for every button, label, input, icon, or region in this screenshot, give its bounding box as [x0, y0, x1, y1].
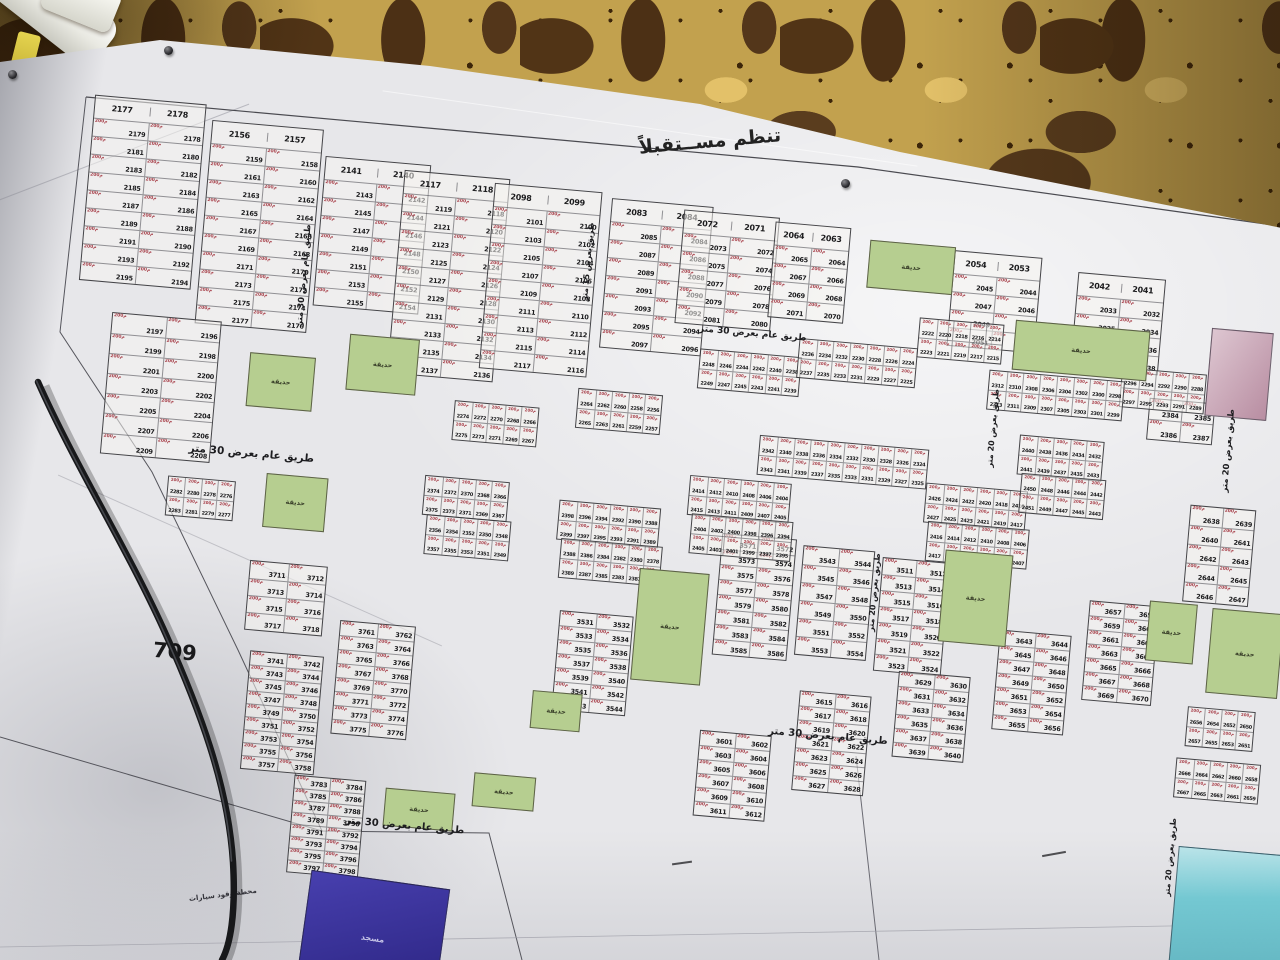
plot-cell: 200م3714: [285, 582, 325, 601]
plot-cell: 200م2646: [1183, 582, 1216, 603]
plot-area-label: 200م: [340, 636, 353, 642]
plot-area-label: 200م: [490, 424, 502, 430]
plot-number: 2410: [978, 538, 994, 545]
plot-number: 3770: [390, 687, 408, 696]
plot-number: 2332: [844, 455, 860, 462]
plot-cell: 200م2417: [926, 542, 944, 561]
plot-cell: 2042: [1078, 280, 1121, 293]
plot-area-label: 200م: [1075, 398, 1087, 404]
plot-area-label: 200م: [244, 743, 257, 749]
plot-area-label: 200م: [207, 198, 220, 204]
plot-area-label: 200م: [491, 243, 504, 249]
plot-cell: 200م2326: [893, 448, 911, 468]
plot-number: 2400: [725, 529, 741, 536]
plot-area-label: 200م: [998, 528, 1010, 534]
plot-area-label: 200م: [581, 389, 593, 395]
plot-number: 3761: [358, 628, 376, 637]
plot-cell: 200م2392: [609, 505, 627, 525]
plot-area-label: 200م: [252, 561, 265, 567]
plot-area-label: 200م: [1246, 765, 1258, 771]
plot-cell: 200م3513: [881, 575, 915, 593]
plot-cell: 200م2334: [826, 442, 844, 462]
plot-cell: 200م3611: [694, 802, 730, 818]
plot-cell: 200م2647: [1215, 585, 1249, 606]
plot-cell: 200م2215: [984, 344, 1002, 363]
plot-area-label: 200م: [1190, 707, 1202, 713]
plot-number: 2199: [144, 347, 162, 356]
plot-cell: 200م3627: [792, 776, 828, 792]
plot-number: 2644: [1197, 574, 1215, 583]
plot-area-label: 200م: [250, 579, 263, 585]
plot-number: 2183: [125, 166, 143, 175]
plot-cell: 200م2640: [1188, 526, 1221, 547]
plot-number: 3749: [262, 709, 280, 718]
plot-number: 2200: [197, 372, 215, 381]
plot-area-label: 200م: [818, 361, 830, 367]
plot-area-label: 200م: [204, 234, 217, 240]
plot-area-label: 200م: [772, 281, 785, 287]
plot-area-label: 200م: [537, 337, 550, 343]
plot-number: 3534: [611, 635, 629, 644]
plot-cell: 200م2195: [80, 262, 136, 284]
plot-number: 2228: [867, 357, 883, 364]
plot-cell: 200م2256: [644, 395, 662, 415]
plot-cell: 200م2434: [1069, 440, 1087, 460]
plot-area-label: 200م: [897, 448, 909, 454]
plot-number: 2658: [1243, 776, 1259, 783]
plot-area-label: 200م: [333, 720, 346, 726]
plot-cell: 200م2234: [815, 341, 833, 361]
plot-area-label: 200م: [580, 561, 592, 567]
plot-area-label: 200م: [699, 760, 712, 766]
plot-cell: 200م2340: [776, 437, 794, 457]
plot-number: 2275: [453, 432, 470, 439]
plot-number: 3577: [735, 586, 753, 595]
plot-number: 2366: [492, 494, 508, 501]
plot-number: 2196: [200, 332, 218, 341]
plot-area-label: 200م: [595, 524, 607, 530]
plot-number: 3545: [817, 574, 835, 583]
plot-number: 2659: [1241, 795, 1257, 802]
plot-area-label: 200م: [267, 149, 280, 155]
plot-cell: 200م2398: [559, 501, 577, 521]
plot-cell: 200م2275: [452, 421, 470, 440]
plot-number: 2640: [1201, 536, 1219, 545]
plot-area-label: 200م: [721, 565, 734, 571]
plot-number: 2394: [593, 516, 609, 523]
plot-area-label: 200م: [564, 539, 576, 545]
plot-area-label: 200م: [282, 720, 295, 726]
garden-area: حديقة: [1012, 320, 1151, 382]
plot-area-label: 200م: [693, 476, 705, 482]
plot-area-label: 200م: [140, 231, 153, 237]
garden-area: حديقة: [866, 240, 956, 295]
plot-number: 2422: [960, 499, 976, 506]
plot-area-label: 200م: [998, 674, 1011, 680]
plot-number: 2290: [1172, 385, 1188, 392]
plot-number: 3646: [1049, 654, 1067, 663]
plot-cell: 200م2405: [689, 534, 707, 553]
garden-area: حديقة: [1205, 608, 1280, 699]
plot-cell: 200م2651: [1235, 732, 1253, 751]
plot-number: 2157: [267, 132, 322, 146]
plot-number: 3791: [306, 828, 324, 837]
plot-cell: 200م2329: [875, 466, 893, 485]
plot-number: 2378: [645, 558, 661, 565]
plot-number: 2205: [139, 407, 157, 416]
plot-area-label: 200م: [691, 496, 703, 502]
plot-number: 2194: [171, 278, 189, 287]
plot-area-label: 200م: [455, 217, 468, 223]
plot-area-label: 200م: [261, 221, 274, 227]
plot-cell: 200م2270: [487, 404, 505, 424]
plot-cell: 200م2446: [1054, 477, 1072, 497]
plot-area-label: 200م: [428, 476, 440, 482]
map-title: تنظم مســتقبلاً: [602, 121, 818, 162]
plot-number: 2111: [518, 307, 536, 316]
plot-area-label: 200م: [911, 642, 924, 648]
plot-cell: 200م2406: [756, 482, 774, 502]
plot-cell: 200م2333: [841, 463, 859, 482]
plot-number: 2292: [1156, 383, 1172, 390]
plot-cell: 200م2401: [723, 537, 741, 556]
plot-number: 3793: [305, 840, 323, 849]
plot-number: 2350: [477, 532, 493, 539]
plot-area-label: 200م: [648, 395, 660, 401]
plot-area-label: 200م: [291, 837, 304, 843]
plot-cell: 200م2328: [876, 446, 894, 466]
plot-area-label: 200م: [1189, 727, 1201, 733]
plot-area-label: 200م: [163, 379, 176, 385]
plot-cell: 2063: [812, 232, 850, 244]
plot-number: 3544: [854, 560, 872, 569]
plot-area-label: 200م: [900, 672, 913, 678]
plot-cell: 200م3629: [899, 672, 935, 689]
plot-area-label: 200م: [370, 723, 383, 729]
plot-area-label: 200م: [456, 199, 469, 205]
plot-number: 2193: [117, 255, 135, 264]
plot-cell: 200م2280: [184, 478, 202, 498]
plot-area-label: 200م: [491, 404, 503, 410]
plot-number: 3649: [1012, 679, 1030, 688]
plot-number: 3618: [849, 715, 867, 724]
plot-number: 2041: [1121, 283, 1164, 296]
plot-number: 2081: [703, 316, 721, 325]
plot-area-label: 200م: [1230, 763, 1242, 769]
plot-number: 2047: [974, 302, 992, 311]
plot-cell: 200م2279: [199, 499, 217, 518]
plot-area-label: 200م: [1124, 619, 1137, 625]
plot-cell: 200م2355: [441, 537, 459, 556]
plot-area-label: 200م: [545, 247, 558, 253]
plot-number: 3517: [892, 614, 910, 623]
plot-cell: 200م2449: [1036, 495, 1054, 514]
plot-number: 3540: [608, 677, 626, 686]
plot-number: 2443: [1087, 511, 1103, 518]
plot-number: 3711: [268, 571, 286, 580]
plot-cell: 200م2655: [1202, 729, 1220, 748]
plot-number: 2159: [245, 155, 263, 164]
plot-area-label: 200م: [829, 779, 842, 785]
plot-area-label: 200م: [1085, 672, 1098, 678]
plot-cell: 200م2069: [770, 281, 808, 301]
plot-area-label: 200م: [947, 485, 959, 491]
plot-area-label: 200م: [607, 276, 620, 282]
plot-number: 2063: [813, 232, 850, 244]
plot-cell: 200م2068: [806, 284, 845, 304]
plot-area-label: 200م: [953, 292, 966, 298]
plot-area-label: 200م: [1190, 526, 1203, 532]
plot-number: 2448: [1039, 487, 1055, 494]
plot-number: 2064: [828, 258, 846, 267]
plot-number: 2223: [918, 349, 935, 356]
mosque-block: مسجد: [295, 870, 450, 960]
plot-area-label: 200م: [1221, 548, 1234, 554]
plot-cell: 200م2438: [1036, 437, 1054, 457]
plot-area-label: 200م: [142, 213, 155, 219]
plot-area-label: 200م: [1088, 462, 1100, 468]
plot-area-label: 200م: [1208, 709, 1220, 715]
plot-area-label: 200م: [288, 655, 301, 661]
plot-cell: 200م2659: [1240, 784, 1258, 803]
plot-cell: 200م2303: [1071, 398, 1089, 417]
plot-area-label: 200م: [737, 353, 749, 359]
plot-number: 3533: [575, 632, 593, 641]
plot-area-label: 200م: [1218, 585, 1231, 591]
plot-area-label: 200م: [524, 407, 536, 413]
plot-area-label: 200م: [615, 544, 627, 550]
plot-cell: 200م3612: [728, 805, 764, 821]
plot-area-label: 200م: [720, 580, 733, 586]
plot-cell: 200م2385: [592, 562, 610, 581]
plot-number: 3755: [259, 747, 277, 756]
garden-area: حديقة: [938, 550, 1014, 648]
plot-number: 2246: [717, 363, 733, 370]
plot-number: 2451: [1019, 505, 1036, 512]
plot-area-label: 200م: [255, 292, 268, 298]
plot-number: 2374: [425, 488, 442, 495]
plot-number: 2222: [919, 330, 936, 337]
plot-area-label: 200م: [201, 270, 214, 276]
plot-area-label: 200م: [996, 490, 1008, 496]
plot-area-label: 200م: [732, 791, 745, 797]
plot-area-label: 200م: [644, 528, 656, 534]
plot-number: 2162: [297, 196, 315, 205]
plot-area-label: 200م: [912, 469, 924, 475]
plot-area-label: 200م: [1224, 509, 1237, 515]
plot-area-label: 200م: [613, 564, 625, 570]
plot-area-label: 200م: [727, 479, 739, 485]
plot-cell: 200م2247: [714, 371, 732, 390]
plot-cell: 200م2404: [691, 514, 709, 534]
plot-number: 3617: [814, 712, 832, 721]
plot-area-label: 200م: [879, 623, 892, 629]
plot-area-label: 200م: [1121, 661, 1134, 667]
plot-area-label: 200م: [376, 203, 389, 209]
plot-area-label: 200م: [733, 777, 746, 783]
plot-cell: 200م2070: [805, 302, 844, 322]
plot-area-label: 200م: [82, 262, 95, 268]
plot-area-label: 200م: [694, 515, 706, 521]
plot-area-label: 200م: [496, 521, 508, 527]
plot-cell: 200م2342: [759, 436, 777, 456]
plot-area-label: 200م: [114, 313, 127, 319]
plot-block: 200م3741200م3742200م3743200م3744200م3745…: [240, 650, 324, 775]
plot-number: 2311: [1005, 403, 1021, 410]
plot-number: 2114: [568, 348, 586, 357]
plot-number: 2249: [698, 380, 715, 387]
plot-cell: 200م2269: [502, 426, 520, 445]
plot-cell: 200م3628: [827, 779, 863, 795]
plot-cell: 200م2339: [791, 459, 809, 478]
plot-number: 3608: [747, 782, 765, 791]
plot-cell: 200م2414: [944, 523, 962, 543]
plot-area-label: 200م: [1075, 479, 1087, 485]
plot-area-label: 200م: [883, 575, 896, 581]
plot-number: 2269: [503, 437, 519, 444]
plot-area-label: 200م: [1211, 782, 1223, 788]
plot-number: 3745: [264, 683, 282, 692]
plot-area-label: 200م: [1108, 401, 1120, 407]
plot-area-label: 200م: [1038, 457, 1050, 463]
plot-cell: 200م2240: [766, 355, 784, 375]
plot-number: 2424: [943, 497, 959, 504]
plot-number: 3654: [1045, 710, 1063, 719]
plot-area-label: 200م: [457, 401, 469, 407]
plot-cell: 200م3519: [877, 623, 911, 641]
plot-area-label: 200م: [199, 287, 212, 293]
plot-number: 2241: [765, 386, 781, 393]
plot-cell: 200م2356: [426, 515, 444, 535]
plot-number: 3785: [309, 792, 327, 801]
plot-strip: 200م2342200م2340200م2338200م2336200م2334…: [757, 435, 930, 490]
plot-area-label: 200م: [778, 458, 790, 464]
plot-number: 3644: [1051, 640, 1069, 649]
plot-number: 2650: [1238, 724, 1254, 731]
plot-number: 3537: [573, 659, 591, 668]
garden-area: حديقة: [1145, 601, 1198, 665]
plot-number: 3581: [732, 616, 750, 625]
plot-cell: 200م2268: [504, 406, 522, 426]
plot-cell: 200م2276: [217, 481, 235, 501]
plot-cell: 200م2288: [1188, 374, 1206, 394]
plot-cell: 2141: [325, 164, 377, 177]
plot-area-label: 200م: [929, 484, 941, 490]
plot-area-label: 200م: [1084, 686, 1097, 692]
plot-area-label: 200م: [592, 685, 605, 691]
plot-cell: 200م2260: [611, 392, 629, 412]
plot-cell: 200م2412: [961, 525, 979, 545]
plot-number: 3741: [267, 657, 285, 666]
plot-area-label: 200م: [868, 365, 880, 371]
plot-area-label: 200م: [540, 301, 553, 307]
plot-cell: 200م2330: [860, 445, 878, 465]
plot-area-label: 200م: [1076, 314, 1089, 320]
plot-number: 2404: [691, 526, 708, 533]
plot-area-label: 200م: [562, 559, 574, 565]
plot-number: 2639: [1235, 520, 1253, 529]
plot-cell: 200م2402: [708, 516, 726, 536]
plot-area-label: 200م: [166, 339, 179, 345]
plot-area-label: 200م: [373, 695, 386, 701]
plot-number: 2384: [1162, 411, 1180, 420]
plot-number: 2117: [404, 177, 456, 190]
plot-area-label: 200م: [751, 643, 764, 649]
plot-area-label: 200م: [322, 216, 335, 222]
plot-number: 2300: [1090, 392, 1106, 399]
plot-area-label: 200م: [258, 256, 271, 262]
plot-area-label: 200م: [725, 309, 738, 315]
plot-area-label: 200م: [702, 731, 715, 737]
plot-number: 2278: [201, 491, 217, 498]
plot-cell: 2083: [612, 206, 662, 219]
plot-number: 2263: [594, 421, 610, 428]
plot-area-label: 200م: [1140, 390, 1152, 396]
plot-area-label: 200م: [1043, 375, 1055, 381]
plot-cell: 200م2216: [969, 323, 987, 343]
plot-cell: 200م2065: [773, 245, 811, 265]
plot-area-label: 200م: [1189, 545, 1202, 551]
plot-area-label: 200م: [393, 320, 406, 326]
plot-number: 2153: [348, 280, 366, 289]
plot-area-label: 200م: [144, 195, 157, 201]
plot-number: 2156: [212, 128, 267, 142]
plot-number: 2335: [826, 473, 842, 480]
plot-number: 2337: [809, 471, 825, 478]
plot-area-label: 200م: [249, 678, 262, 684]
plot-area-label: 200م: [556, 668, 569, 674]
plot-area-label: 200م: [989, 325, 1001, 331]
plot-number: 2410: [724, 491, 740, 498]
plot-cell: 200م3586: [749, 643, 787, 660]
plot-area-label: 200م: [629, 507, 641, 513]
plot-area-label: 200م: [379, 624, 392, 630]
plot-number: 2638: [1202, 517, 1220, 526]
plot-area-label: 200م: [559, 640, 572, 646]
plot-number: 2097: [631, 340, 649, 349]
plot-area-label: 200م: [91, 155, 104, 161]
plot-area-label: 200م: [374, 681, 387, 687]
plot-cell: 200م2395: [773, 542, 791, 561]
plot-area-label: 200م: [317, 270, 330, 276]
plot-cell: 200م2245: [731, 372, 749, 391]
plot-area-label: 200م: [877, 639, 890, 645]
plot-area-label: 200م: [279, 759, 292, 765]
plot-number: 3786: [344, 795, 362, 804]
plot-area-label: 200م: [105, 414, 118, 420]
plot-number: 2442: [1088, 492, 1104, 499]
plot-number: 3634: [947, 709, 965, 718]
plot-area-label: 200م: [324, 198, 337, 204]
plot-number: 2402: [709, 528, 725, 535]
plot-area-label: 200م: [1206, 729, 1218, 735]
plot-area-label: 200م: [337, 678, 350, 684]
plot-cell: 2064: [775, 229, 812, 241]
plot-area-label: 200م: [734, 763, 747, 769]
plot-number: 2397: [757, 551, 773, 558]
plot-area-label: 200م: [1185, 583, 1198, 589]
plot-area-label: 200م: [832, 751, 845, 757]
plot-area-label: 200م: [914, 449, 926, 455]
plot-cell: 200م2293: [1153, 391, 1171, 410]
plot-cell: 200م2408: [994, 528, 1012, 548]
plot-number: 2161: [244, 173, 262, 182]
plot-number: 3712: [307, 574, 325, 583]
plot-number: 2399: [740, 550, 756, 557]
plot-area-label: 200م: [294, 801, 307, 807]
plot-cell: 200م2310: [1005, 372, 1023, 392]
plot-number: 3606: [748, 768, 766, 777]
